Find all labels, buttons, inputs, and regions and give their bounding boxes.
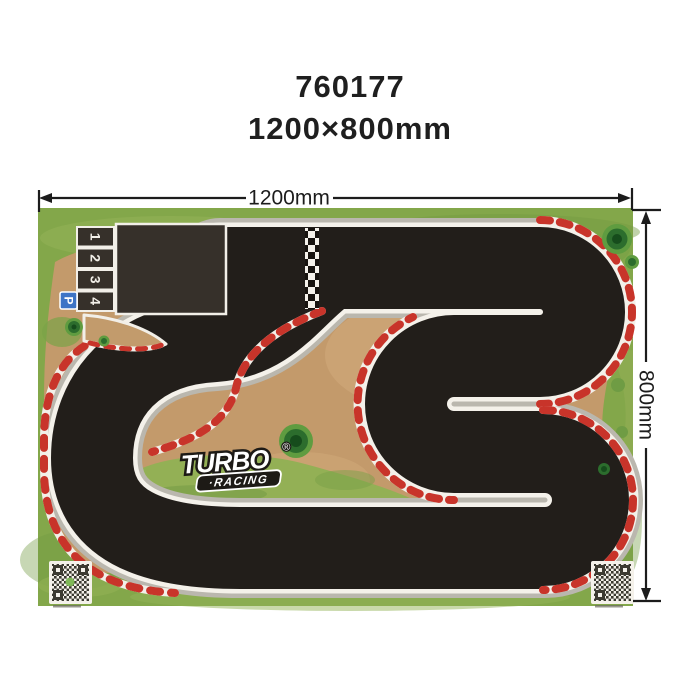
grid-number: 3 [88,276,104,284]
arrow-left-icon [39,193,52,203]
bush-icon [65,318,83,336]
grid-number: 2 [88,254,104,262]
start-grid: 1 2 3 4 P [60,224,226,314]
product-spec-image: 760177 1200×800mm [0,0,700,700]
dimension-height-label: 800mm [635,370,658,440]
logo-registered-mark: ® [282,441,291,454]
bush-icon [99,336,110,347]
bush-icon [625,255,639,269]
arrow-right-icon [618,193,631,203]
qr-code-right [591,561,634,608]
bush-icon [598,463,610,475]
grid-number: 4 [88,297,104,305]
grid-number: 1 [88,233,104,241]
arrow-down-icon [641,588,651,601]
qr-code-left [49,561,92,608]
start-finish-line [305,228,319,309]
parking-sign-icon: P [60,292,77,309]
arrow-up-icon [641,211,651,224]
parking-sign-letter: P [62,296,76,304]
bush-icon [602,224,632,254]
dimension-width-label: 1200mm [248,187,330,210]
track-mat-diagram: 1 2 3 4 P TURBO ® [0,0,700,700]
grid-slots: 1 2 3 4 [77,227,114,311]
